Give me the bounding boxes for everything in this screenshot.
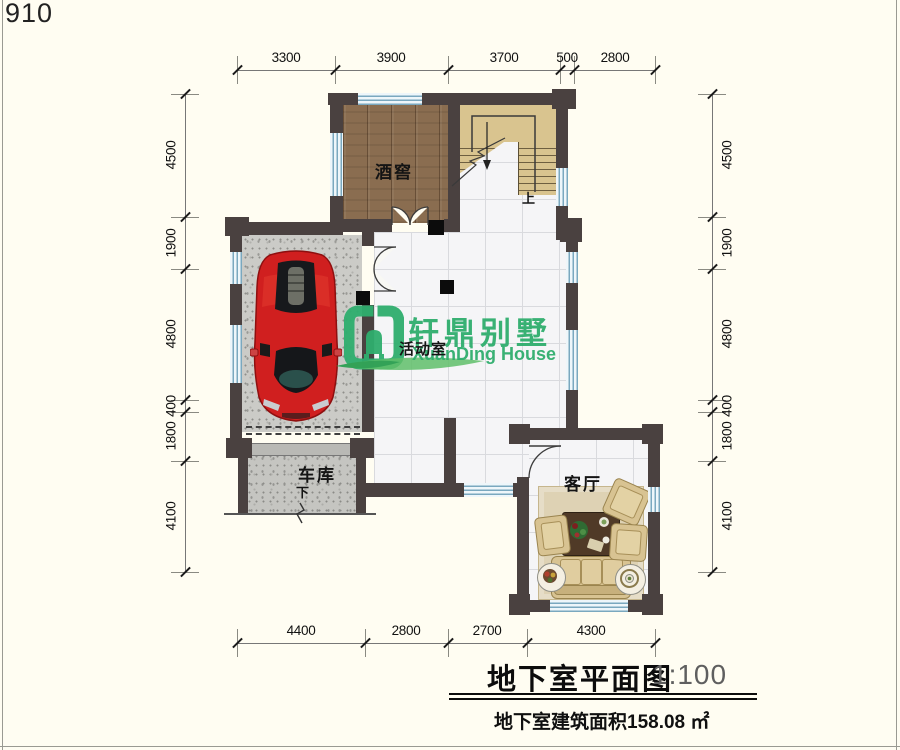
dim-label: 2700 <box>473 623 502 638</box>
dim-label: 4800 <box>164 320 179 349</box>
dim-label: 400 <box>720 395 735 417</box>
window <box>358 93 422 105</box>
drawing-title: 地下室平面图 <box>487 656 673 698</box>
room-label-living-room: 客厅 <box>564 470 602 495</box>
dimension-line-right <box>712 94 713 572</box>
room-label-activity-room: 活动室 <box>399 338 447 359</box>
wall <box>444 219 460 232</box>
dim-label: 1800 <box>720 422 735 451</box>
page-number: 910 <box>5 0 53 29</box>
dim-label: 3700 <box>490 50 519 65</box>
room-label-wine-cellar: 酒窖 <box>375 158 413 183</box>
wall <box>517 428 660 440</box>
drawing-scale: 1:100 <box>652 659 727 691</box>
side-table-left-plant <box>537 563 564 590</box>
wall <box>448 105 460 219</box>
dim-label: 3300 <box>272 50 301 65</box>
car-top-view-image <box>250 247 342 423</box>
armchair-right-bottom <box>609 523 648 562</box>
dim-label: 4800 <box>720 320 735 349</box>
garage-door-dashed-line <box>246 426 360 428</box>
window <box>566 330 578 390</box>
dim-label: 4100 <box>720 502 735 531</box>
wall <box>238 456 248 514</box>
dim-label: 1900 <box>164 229 179 258</box>
dim-label: 4500 <box>164 141 179 170</box>
ramp-edge-line <box>224 513 376 515</box>
wall <box>648 428 660 612</box>
sheet-border-bottom <box>0 746 900 747</box>
dimension-line-left <box>185 94 186 572</box>
wall-pilaster <box>509 424 530 444</box>
wall <box>517 477 529 612</box>
dim-label: 1900 <box>720 229 735 258</box>
window <box>330 133 343 196</box>
column <box>440 280 454 294</box>
sofa-cushion <box>581 559 602 585</box>
stair-up-label: 上 <box>522 188 535 207</box>
area-subtitle: 地下室建筑面积158.08 ㎡ <box>494 707 709 734</box>
stair-landing <box>460 105 556 142</box>
wall <box>362 232 374 246</box>
dim-label: 4400 <box>287 623 316 638</box>
dim-label: 2800 <box>601 50 630 65</box>
title-underline <box>449 698 757 700</box>
floorplan-sheet: 910 <box>0 0 900 750</box>
wall-pilaster <box>552 89 576 109</box>
dim-label: 1800 <box>164 422 179 451</box>
ramp-down-label: 下 <box>296 482 309 501</box>
wall-pilaster <box>642 424 663 444</box>
dim-label: 4500 <box>720 141 735 170</box>
title-underline <box>449 693 757 695</box>
side-table-right-decor <box>615 564 644 593</box>
wall-pilaster <box>226 438 252 458</box>
wall-pilaster <box>509 594 530 615</box>
garage-door-dashed-line <box>246 433 360 435</box>
wall <box>343 219 392 232</box>
sheet-border-left <box>2 0 3 750</box>
dim-label: 2800 <box>392 623 421 638</box>
window <box>230 252 242 284</box>
dim-label: 4100 <box>164 502 179 531</box>
dim-label: 500 <box>556 50 578 65</box>
wall-pilaster <box>560 218 582 242</box>
window <box>648 487 660 512</box>
garage-door-sill <box>252 443 350 456</box>
window <box>550 600 628 612</box>
wall <box>444 418 456 483</box>
dim-label: 400 <box>164 395 179 417</box>
wall-pilaster <box>642 594 663 615</box>
sheet-border-right <box>896 0 897 750</box>
column <box>428 220 444 235</box>
window <box>230 325 242 383</box>
armchair-left <box>534 514 572 557</box>
wall-pilaster <box>350 438 374 458</box>
window <box>566 252 578 283</box>
dim-label: 4300 <box>577 623 606 638</box>
dim-label: 3900 <box>377 50 406 65</box>
window <box>464 483 513 497</box>
window <box>556 168 568 206</box>
